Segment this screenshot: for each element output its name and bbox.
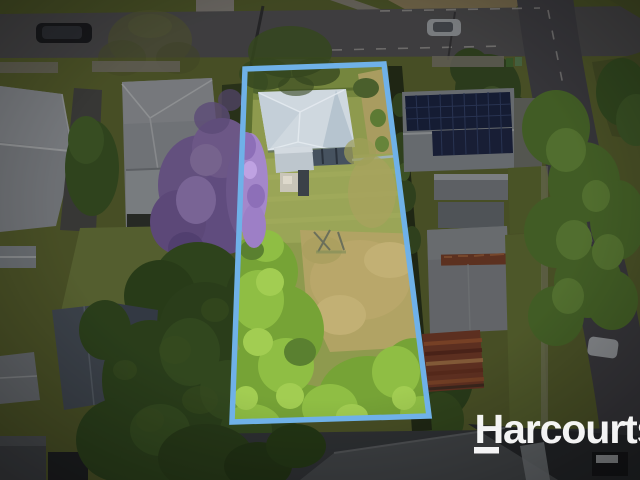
svg-text:Harcourts: Harcourts bbox=[475, 406, 640, 452]
